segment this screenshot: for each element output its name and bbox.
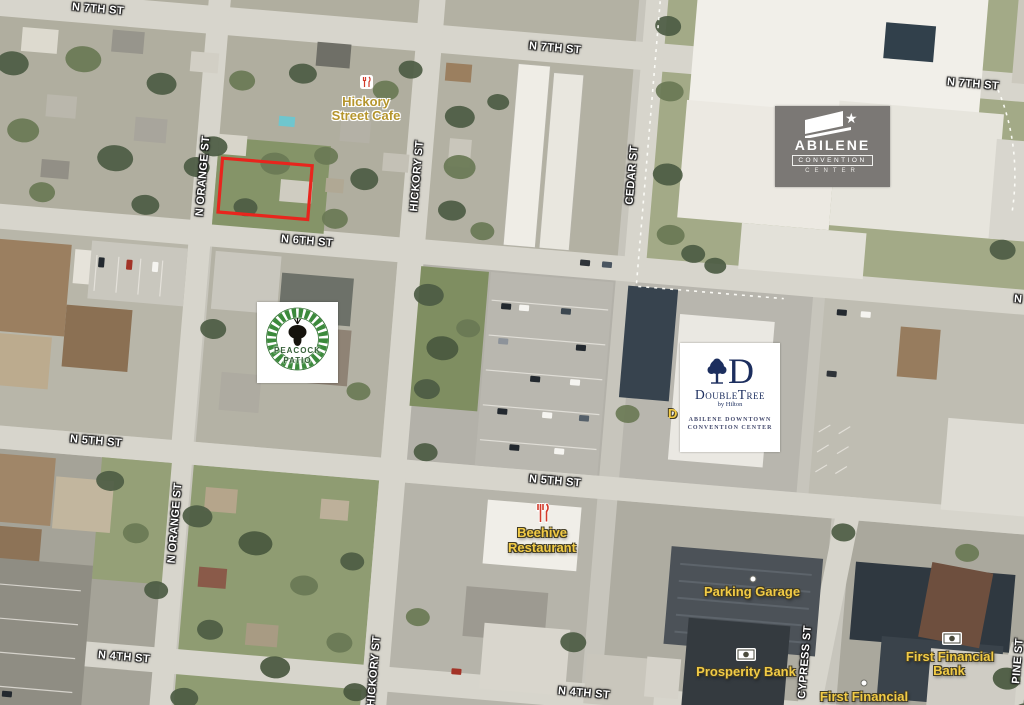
doubletree-logo-sub2: CONVENTION CENTER [688, 424, 773, 432]
doubletree-logo-sub1: ABILENE DOWNTOWN [689, 416, 772, 424]
poi-label-parking-garage: Parking Garage [704, 584, 800, 599]
abilene-convention-center-logo: ● ★ ABILENE CONVENTION CENTER [775, 106, 890, 187]
star-icon: ★ [845, 111, 858, 127]
doubletree-logo-initial: D [728, 356, 754, 386]
abilene-logo-center: CENTER [805, 168, 860, 174]
doubletree-logo-brand: DoubleTree [695, 388, 765, 401]
peacock-patio-logo: PEACOCK PATIO [257, 302, 338, 383]
bank-dollar-icon [942, 632, 962, 645]
abilene-logo-title: ABILENE [795, 138, 870, 153]
restaurant-icon [534, 503, 550, 523]
poi-label-hickory-street-cafe-1: Hickory [342, 94, 390, 109]
abilene-logo-convention: CONVENTION [792, 155, 872, 166]
doubletree-logo-byline: by Hilton [718, 401, 743, 409]
occluded-poi-fragment: D [668, 406, 677, 421]
restaurant-icon [360, 75, 373, 89]
poi-label-hickory-street-cafe-2: Street Cafe [332, 108, 401, 123]
peacock-icon [257, 302, 338, 383]
peacock-logo-line1: PEACOCK [257, 346, 338, 355]
aerial-map-screenshot: N 7TH ST N 7TH ST N 7TH ST N 6TH ST N 5T… [0, 0, 1024, 705]
doubletree-logo: D DoubleTree by Hilton ABILENE DOWNTOWN … [680, 343, 780, 452]
street-label-edge-partial: N [1013, 293, 1022, 306]
poi-label-first-financial-bank-1: First Financial [906, 649, 994, 664]
bank-dollar-icon [736, 648, 756, 661]
flag-star-icon: ● ★ [801, 110, 865, 138]
tree-icon [706, 358, 728, 386]
poi-dot-icon [749, 575, 757, 583]
poi-label-first-financial-bank-2: Bank [933, 663, 965, 678]
poi-dot-icon [860, 679, 868, 687]
peacock-logo-line2: PATIO [257, 356, 338, 365]
poi-label-prosperity-bank: Prosperity Bank [696, 664, 796, 679]
poi-label-beehive-1: Beehive [517, 525, 567, 540]
poi-label-first-financial-lower: First Financial [820, 689, 908, 704]
poi-label-beehive-2: Restaurant [508, 540, 576, 555]
